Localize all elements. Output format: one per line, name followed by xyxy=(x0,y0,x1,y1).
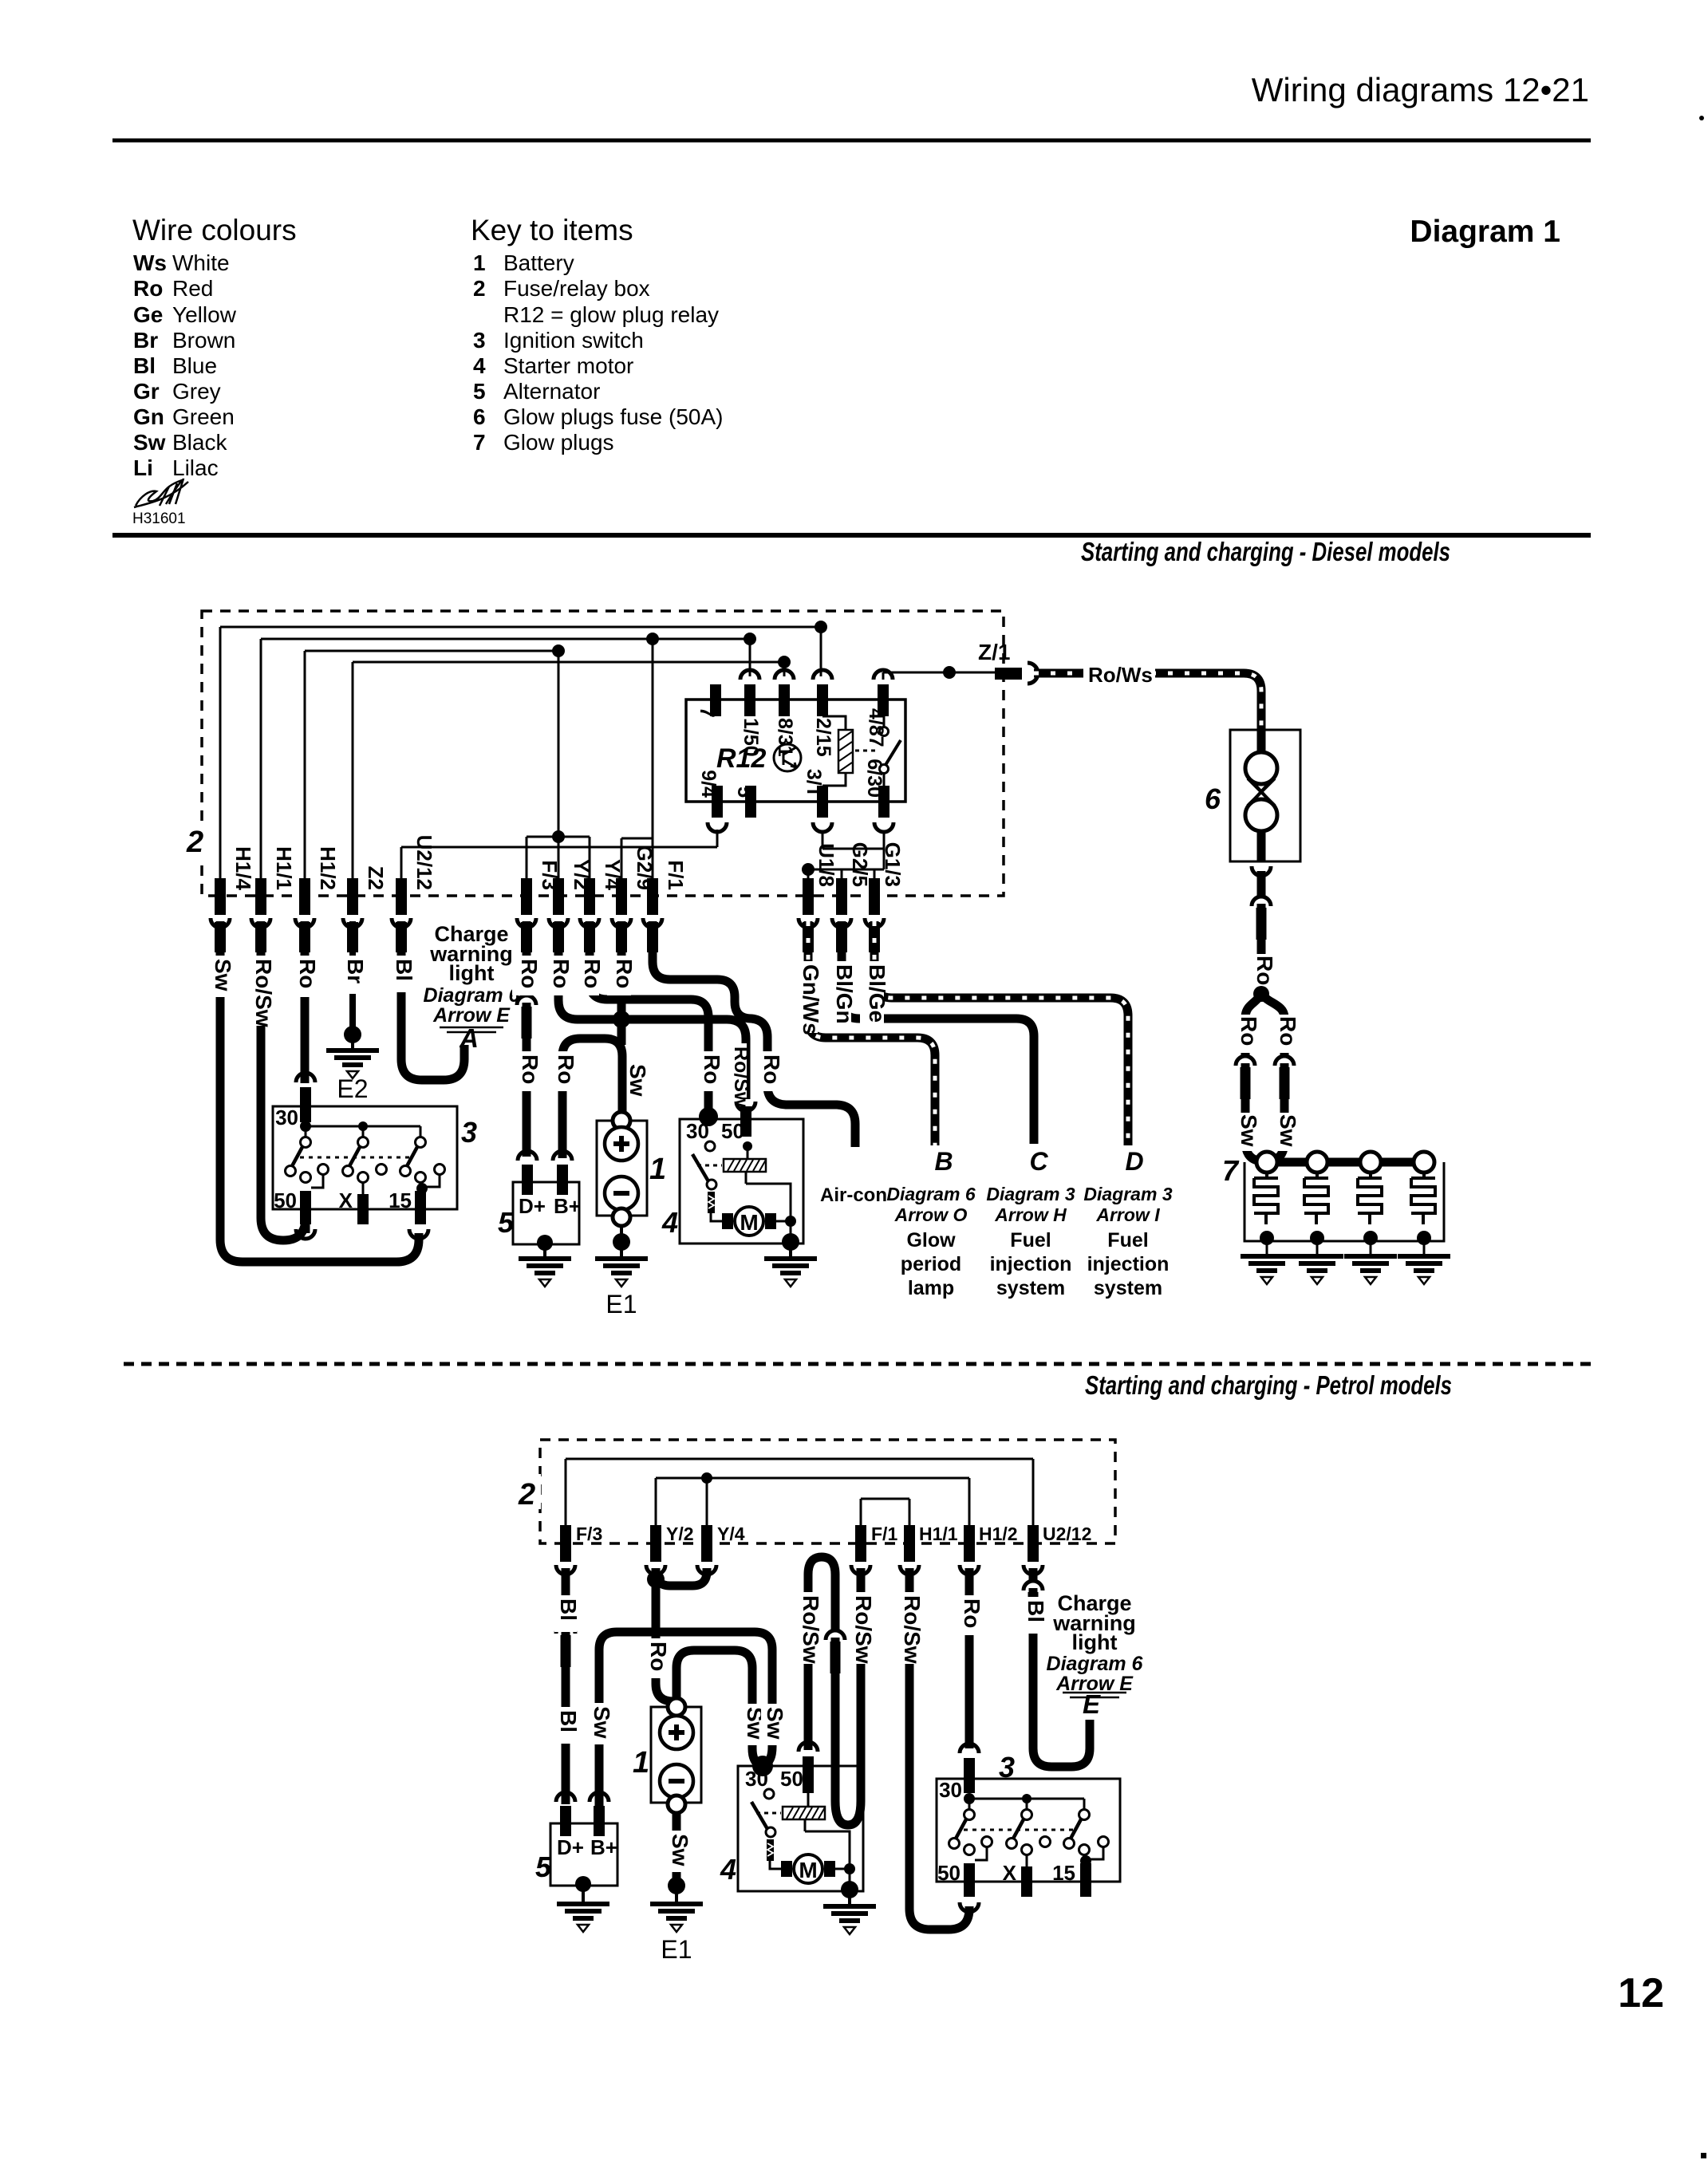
svg-text:Ignition switch: Ignition switch xyxy=(503,328,644,353)
svg-text:Blue: Blue xyxy=(172,353,217,378)
svg-text:4: 4 xyxy=(720,1853,736,1886)
svg-text:X: X xyxy=(1003,1861,1017,1885)
svg-text:Lilac: Lilac xyxy=(172,455,219,480)
svg-text:2: 2 xyxy=(518,1478,535,1512)
svg-text:Bl: Bl xyxy=(133,353,156,378)
svg-text:light: light xyxy=(449,961,495,985)
svg-text:Sw: Sw xyxy=(668,1834,692,1866)
svg-text:period: period xyxy=(901,1253,961,1275)
svg-text:Gr: Gr xyxy=(133,379,160,404)
svg-text:6/30: 6/30 xyxy=(863,759,886,798)
svg-text:30: 30 xyxy=(939,1778,962,1802)
svg-text:injection: injection xyxy=(990,1253,1072,1275)
svg-text:Ro: Ro xyxy=(554,1054,578,1084)
svg-text:Sw: Sw xyxy=(625,1064,650,1097)
svg-text:M: M xyxy=(799,1858,817,1882)
svg-text:Glow plugs: Glow plugs xyxy=(503,430,614,455)
svg-text:Air-con: Air-con xyxy=(820,1184,887,1206)
svg-text:Ro: Ro xyxy=(700,1054,724,1084)
svg-text:Ro/Sw: Ro/Sw xyxy=(851,1595,876,1664)
svg-text:50: 50 xyxy=(721,1119,744,1143)
svg-text:Fuel: Fuel xyxy=(1010,1229,1051,1251)
svg-text:D: D xyxy=(1125,1147,1143,1176)
svg-text:Arrow H: Arrow H xyxy=(994,1204,1067,1225)
svg-text:E1: E1 xyxy=(661,1935,692,1964)
svg-text:5: 5 xyxy=(473,379,486,404)
svg-text:Starter motor: Starter motor xyxy=(503,353,633,378)
svg-text:H31601: H31601 xyxy=(132,510,186,527)
svg-text:E2: E2 xyxy=(337,1074,368,1103)
svg-text:F/3: F/3 xyxy=(538,860,562,890)
svg-text:7: 7 xyxy=(473,430,486,455)
svg-text:Alternator: Alternator xyxy=(503,379,600,404)
svg-text:E1: E1 xyxy=(605,1290,637,1318)
svg-text:D+: D+ xyxy=(519,1194,546,1218)
svg-text:Wire colours: Wire colours xyxy=(132,214,297,246)
svg-text:15: 15 xyxy=(1052,1861,1075,1885)
svg-text:1: 1 xyxy=(473,250,486,275)
svg-text:2: 2 xyxy=(473,276,486,301)
svg-text:Ro: Ro xyxy=(646,1642,671,1671)
svg-text:50: 50 xyxy=(780,1767,803,1791)
svg-text:Ro: Ro xyxy=(518,1054,542,1084)
svg-text:U2/12: U2/12 xyxy=(1043,1523,1091,1544)
svg-text:H1/2: H1/2 xyxy=(316,846,340,890)
svg-text:Arrow O: Arrow O xyxy=(894,1204,968,1225)
svg-text:Diagram 6: Diagram 6 xyxy=(1047,1653,1144,1675)
svg-text:Bl: Bl xyxy=(556,1710,581,1732)
svg-text:E: E xyxy=(1083,1689,1101,1719)
svg-text:C: C xyxy=(1029,1147,1048,1176)
svg-text:injection: injection xyxy=(1087,1253,1170,1275)
svg-text:Br: Br xyxy=(343,959,368,983)
svg-text:Glow: Glow xyxy=(906,1229,956,1251)
svg-text:4: 4 xyxy=(661,1206,678,1239)
svg-text:Ro/Sw: Ro/Sw xyxy=(251,959,276,1027)
svg-text:light: light xyxy=(1072,1630,1118,1654)
svg-text:2: 2 xyxy=(186,826,203,859)
svg-text:Ro: Ro xyxy=(517,959,542,988)
svg-text:H1/2: H1/2 xyxy=(979,1523,1018,1544)
svg-text:Ro/Sw: Ro/Sw xyxy=(900,1595,925,1664)
svg-text:Ro: Ro xyxy=(580,959,605,988)
svg-text:White: White xyxy=(172,250,230,275)
svg-text:H1/4: H1/4 xyxy=(231,846,255,890)
svg-text:Sw: Sw xyxy=(1237,1114,1261,1147)
svg-text:1: 1 xyxy=(633,1746,649,1780)
svg-text:Ro: Ro xyxy=(1252,956,1277,985)
svg-text:6: 6 xyxy=(1205,782,1221,815)
svg-text:lamp: lamp xyxy=(908,1277,954,1299)
svg-text:B+: B+ xyxy=(554,1194,581,1218)
svg-text:Gn/Ws: Gn/Ws xyxy=(799,964,823,1035)
svg-text:Li: Li xyxy=(133,455,153,480)
svg-text:Wiring diagrams 12•21: Wiring diagrams 12•21 xyxy=(1252,71,1589,108)
svg-text:Sw: Sw xyxy=(211,959,235,991)
svg-text:30: 30 xyxy=(745,1767,768,1791)
svg-text:B: B xyxy=(934,1147,953,1176)
svg-text:Grey: Grey xyxy=(172,379,221,404)
svg-text:1/50: 1/50 xyxy=(740,718,762,757)
svg-text:Glow plugs fuse (50A): Glow plugs fuse (50A) xyxy=(503,404,723,429)
svg-text:Bl/Ge: Bl/Ge xyxy=(865,964,890,1023)
svg-text:Black: Black xyxy=(172,430,227,455)
svg-text:Gn: Gn xyxy=(133,404,164,429)
svg-text:Sw: Sw xyxy=(133,430,166,455)
svg-text:15: 15 xyxy=(389,1188,412,1212)
svg-text:5: 5 xyxy=(535,1851,552,1883)
svg-text:F/1: F/1 xyxy=(871,1523,897,1544)
svg-text:Ro: Ro xyxy=(295,959,320,988)
svg-text:Ro: Ro xyxy=(960,1598,984,1628)
svg-text:M: M xyxy=(740,1210,758,1235)
svg-text:system: system xyxy=(996,1277,1065,1299)
svg-text:Bl: Bl xyxy=(1024,1600,1048,1622)
svg-text:Y/2: Y/2 xyxy=(570,859,594,890)
svg-text:30: 30 xyxy=(686,1119,709,1143)
svg-text:D+: D+ xyxy=(557,1835,584,1859)
svg-text:U2/12: U2/12 xyxy=(412,835,436,890)
svg-text:H1/1: H1/1 xyxy=(272,846,296,890)
svg-text:1: 1 xyxy=(649,1153,666,1186)
svg-text:X: X xyxy=(339,1188,353,1212)
svg-text:Br: Br xyxy=(133,328,158,353)
svg-text:Ro: Ro xyxy=(612,959,637,988)
svg-text:Bl/Gn: Bl/Gn xyxy=(832,964,857,1024)
svg-text:3: 3 xyxy=(461,1116,477,1149)
svg-text:system: system xyxy=(1094,1277,1162,1299)
svg-text:Ro: Ro xyxy=(1276,1016,1300,1046)
svg-text:Battery: Battery xyxy=(503,250,574,275)
svg-text:Ro: Ro xyxy=(133,276,163,301)
svg-text:Z2: Z2 xyxy=(364,866,388,890)
svg-text:Fuse/relay box: Fuse/relay box xyxy=(503,276,650,301)
svg-text:H1/1: H1/1 xyxy=(919,1523,958,1544)
svg-text:Red: Red xyxy=(172,276,213,301)
svg-text:Ro: Ro xyxy=(549,959,574,988)
svg-text:30: 30 xyxy=(275,1106,298,1129)
svg-text:A: A xyxy=(459,1023,479,1053)
svg-text:Arrow I: Arrow I xyxy=(1095,1204,1160,1225)
svg-text:Z/1: Z/1 xyxy=(978,640,1010,664)
svg-text:6: 6 xyxy=(473,404,486,429)
svg-text:Sw: Sw xyxy=(763,1707,787,1740)
svg-text:U1/8: U1/8 xyxy=(815,843,838,887)
svg-text:Diagram 6: Diagram 6 xyxy=(424,984,521,1007)
svg-text:9/4: 9/4 xyxy=(697,770,720,798)
svg-text:50: 50 xyxy=(937,1861,961,1885)
svg-text:Ro/Sw: Ro/Sw xyxy=(730,1046,752,1108)
svg-text:Green: Green xyxy=(172,404,235,429)
svg-text:Starting and charging - Diesel: Starting and charging - Diesel models xyxy=(1081,537,1450,566)
svg-text:Bl: Bl xyxy=(556,1598,581,1621)
svg-text:Diagram 3: Diagram 3 xyxy=(986,1184,1075,1204)
svg-text:Y/4: Y/4 xyxy=(717,1523,745,1544)
svg-text:Sw: Sw xyxy=(590,1706,614,1739)
svg-text:7: 7 xyxy=(1222,1154,1240,1187)
svg-text:Y/4: Y/4 xyxy=(601,859,625,891)
svg-text:50: 50 xyxy=(274,1188,297,1212)
svg-text:2/15: 2/15 xyxy=(812,718,834,757)
svg-text:G1/3: G1/3 xyxy=(881,842,905,887)
svg-text:Ro/Sw: Ro/Sw xyxy=(799,1595,823,1664)
svg-text:Bl: Bl xyxy=(392,959,416,981)
svg-text:Ge: Ge xyxy=(133,302,163,327)
svg-text:4/87: 4/87 xyxy=(865,708,887,747)
svg-text:Diagram 6: Diagram 6 xyxy=(886,1184,975,1204)
svg-text:Yellow: Yellow xyxy=(172,302,237,327)
svg-text:Brown: Brown xyxy=(172,328,235,353)
svg-text:R12 = glow plug relay: R12 = glow plug relay xyxy=(503,302,719,327)
svg-text:Ro/Ws: Ro/Ws xyxy=(1088,663,1153,687)
svg-text:12: 12 xyxy=(1618,1970,1664,2016)
svg-text:3/T: 3/T xyxy=(803,769,825,798)
svg-text:5: 5 xyxy=(733,786,755,798)
svg-text:Starting and charging - Petrol: Starting and charging - Petrol models xyxy=(1085,1370,1452,1400)
svg-text:F/1: F/1 xyxy=(664,860,688,890)
svg-text:3: 3 xyxy=(473,328,486,353)
svg-text:3: 3 xyxy=(999,1751,1015,1784)
svg-text:7: 7 xyxy=(696,707,718,718)
svg-text:4: 4 xyxy=(473,353,486,378)
svg-text:Ws: Ws xyxy=(133,250,167,275)
svg-text:Diagram 1: Diagram 1 xyxy=(1410,215,1560,249)
svg-text:G2/9: G2/9 xyxy=(633,845,657,890)
svg-text:Y/2: Y/2 xyxy=(666,1523,694,1544)
svg-text:Ro: Ro xyxy=(759,1054,784,1084)
svg-text:B+: B+ xyxy=(590,1835,617,1859)
svg-text:Key to items: Key to items xyxy=(471,214,633,246)
svg-text:5: 5 xyxy=(498,1206,515,1239)
svg-text:Fuel: Fuel xyxy=(1107,1229,1148,1251)
svg-text:Diagram 3: Diagram 3 xyxy=(1083,1184,1172,1204)
svg-text:F/3: F/3 xyxy=(576,1523,602,1544)
svg-text:G2/5: G2/5 xyxy=(848,842,872,887)
svg-text:8/31: 8/31 xyxy=(774,718,796,757)
svg-text:Ro: Ro xyxy=(1237,1016,1261,1046)
svg-text:Sw: Sw xyxy=(1276,1114,1300,1147)
